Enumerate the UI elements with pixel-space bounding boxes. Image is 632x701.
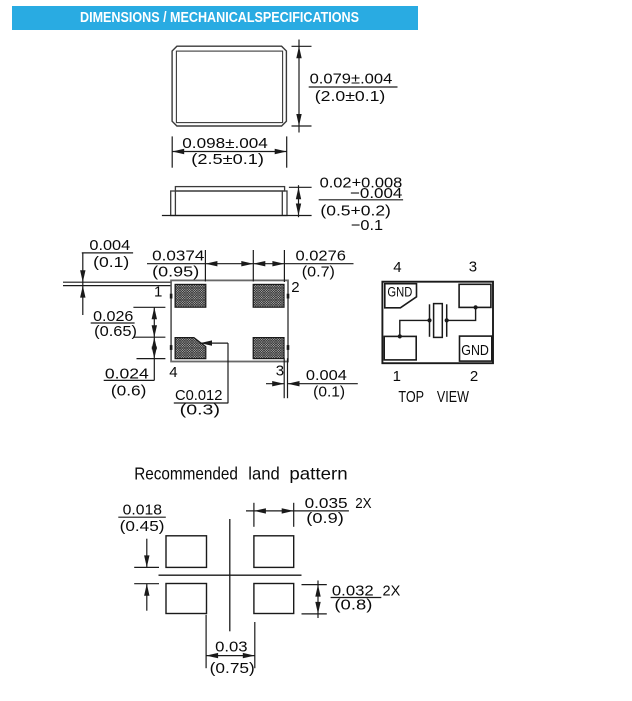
svg-text:pattern: pattern bbox=[289, 463, 347, 483]
svg-text:0.018: 0.018 bbox=[123, 502, 162, 519]
svg-text:VIEW: VIEW bbox=[437, 389, 469, 406]
svg-text:(0.6): (0.6) bbox=[111, 383, 147, 400]
svg-text:0.004: 0.004 bbox=[306, 367, 347, 384]
svg-text:1: 1 bbox=[393, 368, 401, 385]
svg-text:0.0374: 0.0374 bbox=[152, 248, 204, 265]
svg-text:2: 2 bbox=[291, 279, 299, 296]
svg-text:0.0276: 0.0276 bbox=[296, 248, 346, 265]
svg-text:0.03: 0.03 bbox=[215, 639, 248, 656]
svg-text:Recommended: Recommended bbox=[134, 463, 238, 483]
svg-text:−0.1: −0.1 bbox=[351, 217, 383, 234]
svg-text:(0.8): (0.8) bbox=[334, 596, 372, 613]
svg-text:GND: GND bbox=[387, 285, 412, 300]
svg-text:4: 4 bbox=[393, 259, 401, 276]
svg-text:2X: 2X bbox=[355, 495, 371, 512]
svg-text:0.098±.004: 0.098±.004 bbox=[182, 135, 267, 152]
svg-text:(0.7): (0.7) bbox=[302, 264, 335, 281]
svg-text:(0.95): (0.95) bbox=[152, 264, 199, 281]
svg-text:4: 4 bbox=[169, 364, 177, 381]
svg-text:(0.1): (0.1) bbox=[313, 384, 345, 401]
svg-text:land: land bbox=[248, 463, 279, 483]
svg-text:DIMENSIONS / MECHANICALSPECIFI: DIMENSIONS / MECHANICALSPECIFICATIONS bbox=[80, 9, 359, 26]
svg-text:(0.75): (0.75) bbox=[210, 660, 255, 677]
svg-text:3: 3 bbox=[276, 363, 284, 380]
svg-text:(0.9): (0.9) bbox=[306, 510, 344, 527]
svg-text:(0.3): (0.3) bbox=[180, 402, 220, 419]
svg-text:(2.5±0.1): (2.5±0.1) bbox=[191, 151, 264, 168]
svg-text:3: 3 bbox=[469, 258, 477, 275]
svg-text:(0.45): (0.45) bbox=[120, 518, 165, 535]
svg-text:TOP: TOP bbox=[398, 389, 424, 406]
svg-text:2: 2 bbox=[470, 368, 478, 385]
svg-text:0.004: 0.004 bbox=[89, 237, 130, 254]
svg-text:0.079±.004: 0.079±.004 bbox=[310, 71, 393, 88]
svg-text:(0.1): (0.1) bbox=[93, 254, 129, 271]
svg-text:GND: GND bbox=[461, 343, 489, 359]
svg-text:(2.0±0.1): (2.0±0.1) bbox=[315, 88, 386, 105]
svg-text:2X: 2X bbox=[383, 582, 401, 599]
svg-text:(0.65): (0.65) bbox=[94, 323, 137, 340]
